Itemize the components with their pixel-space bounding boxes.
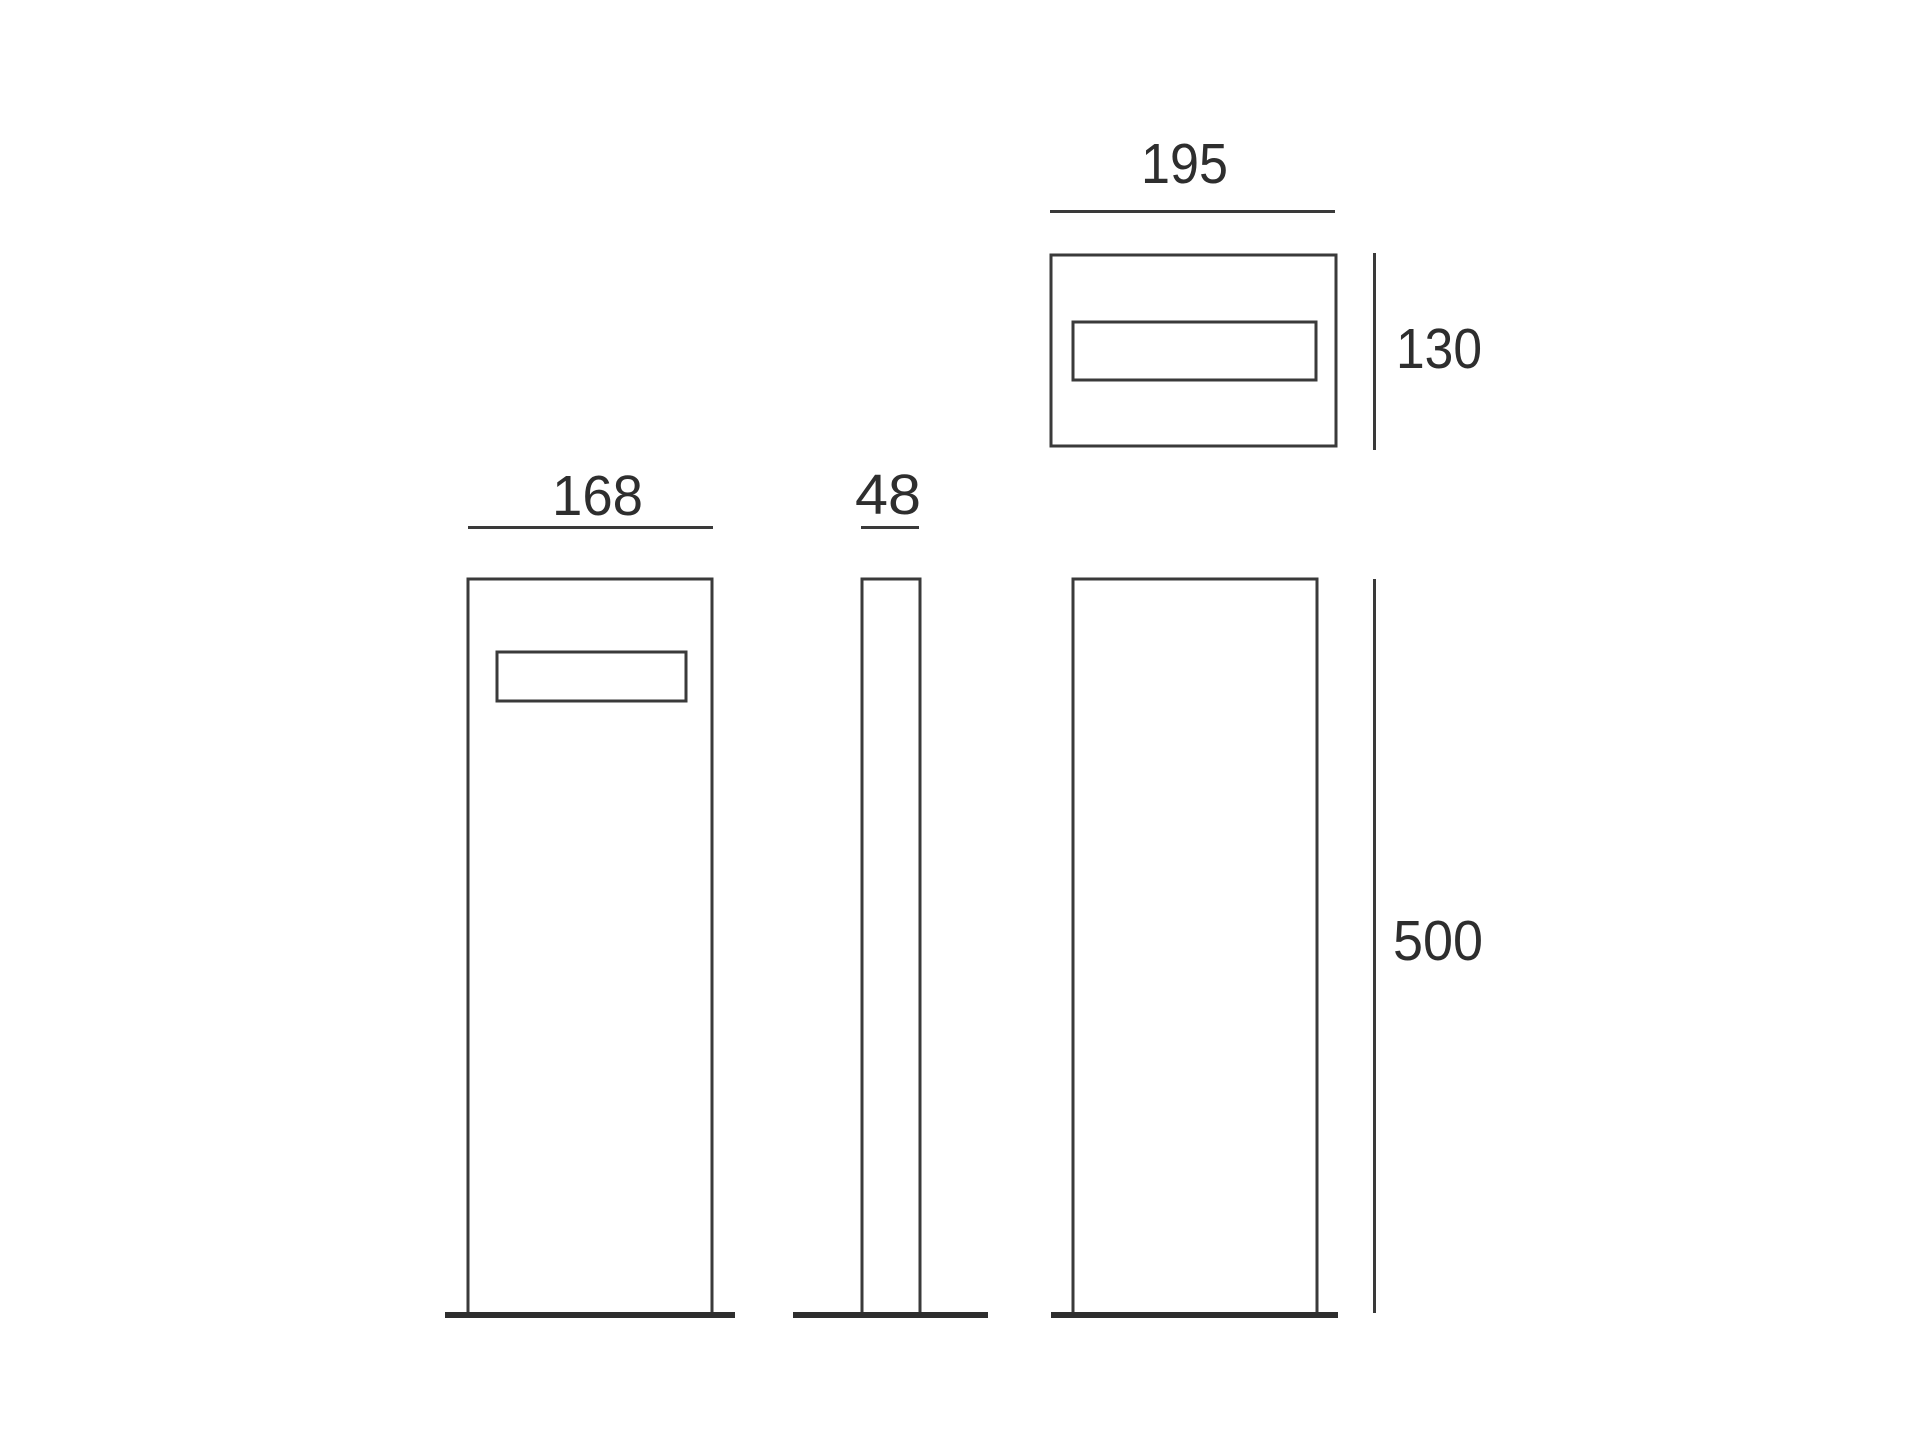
svg-text:500: 500: [1393, 909, 1483, 973]
svg-text:168: 168: [552, 464, 643, 528]
svg-text:48: 48: [855, 463, 921, 527]
svg-text:130: 130: [1396, 317, 1482, 381]
svg-text:195: 195: [1141, 132, 1228, 196]
